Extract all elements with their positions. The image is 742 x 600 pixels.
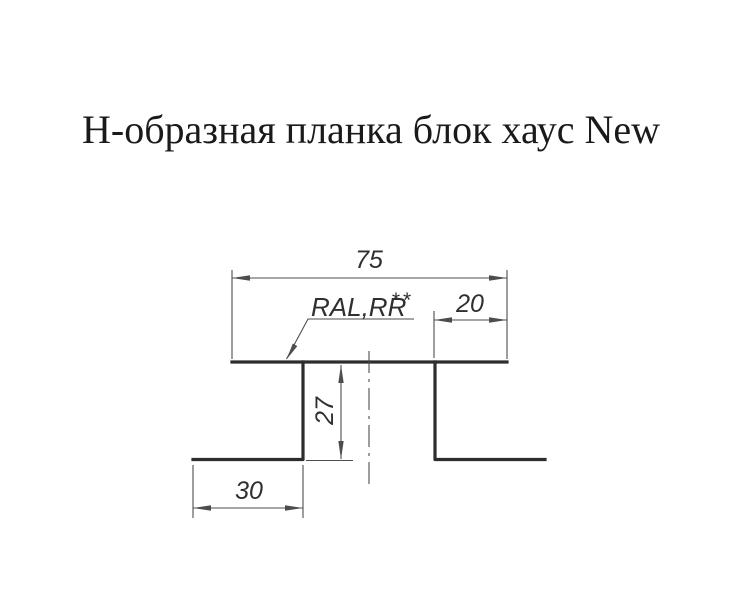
arrowhead-bottom	[338, 441, 343, 459]
page: Н-образная планка блок хаус New 75 20	[0, 0, 742, 600]
technical-drawing: 75 20 27 30	[0, 0, 742, 600]
dimension-value-27: 27	[311, 396, 339, 426]
arrowhead-right	[489, 317, 507, 322]
leader-line	[287, 319, 415, 359]
arrowhead-top	[338, 365, 343, 383]
leader-arrowhead	[287, 344, 298, 360]
arrowhead-right	[285, 505, 303, 510]
arrowhead-left	[434, 317, 452, 322]
dimension-web-height: 27	[306, 365, 353, 461]
dimension-bottom-flange: 30	[193, 465, 303, 518]
dimension-value-75: 75	[355, 246, 383, 274]
coating-stars: **	[391, 289, 413, 312]
profile-left-web-and-bottom-flange	[193, 362, 303, 460]
dimension-value-30: 30	[235, 477, 263, 505]
arrowhead-right	[489, 275, 507, 280]
arrowhead-left	[232, 275, 250, 280]
dimension-right-flange: 20	[434, 290, 507, 358]
coating-leader-note: RAL,RR **	[287, 289, 415, 360]
dimension-value-20: 20	[455, 290, 484, 318]
arrowhead-left	[193, 505, 211, 510]
profile-right-web-and-bottom-flange	[435, 362, 545, 460]
